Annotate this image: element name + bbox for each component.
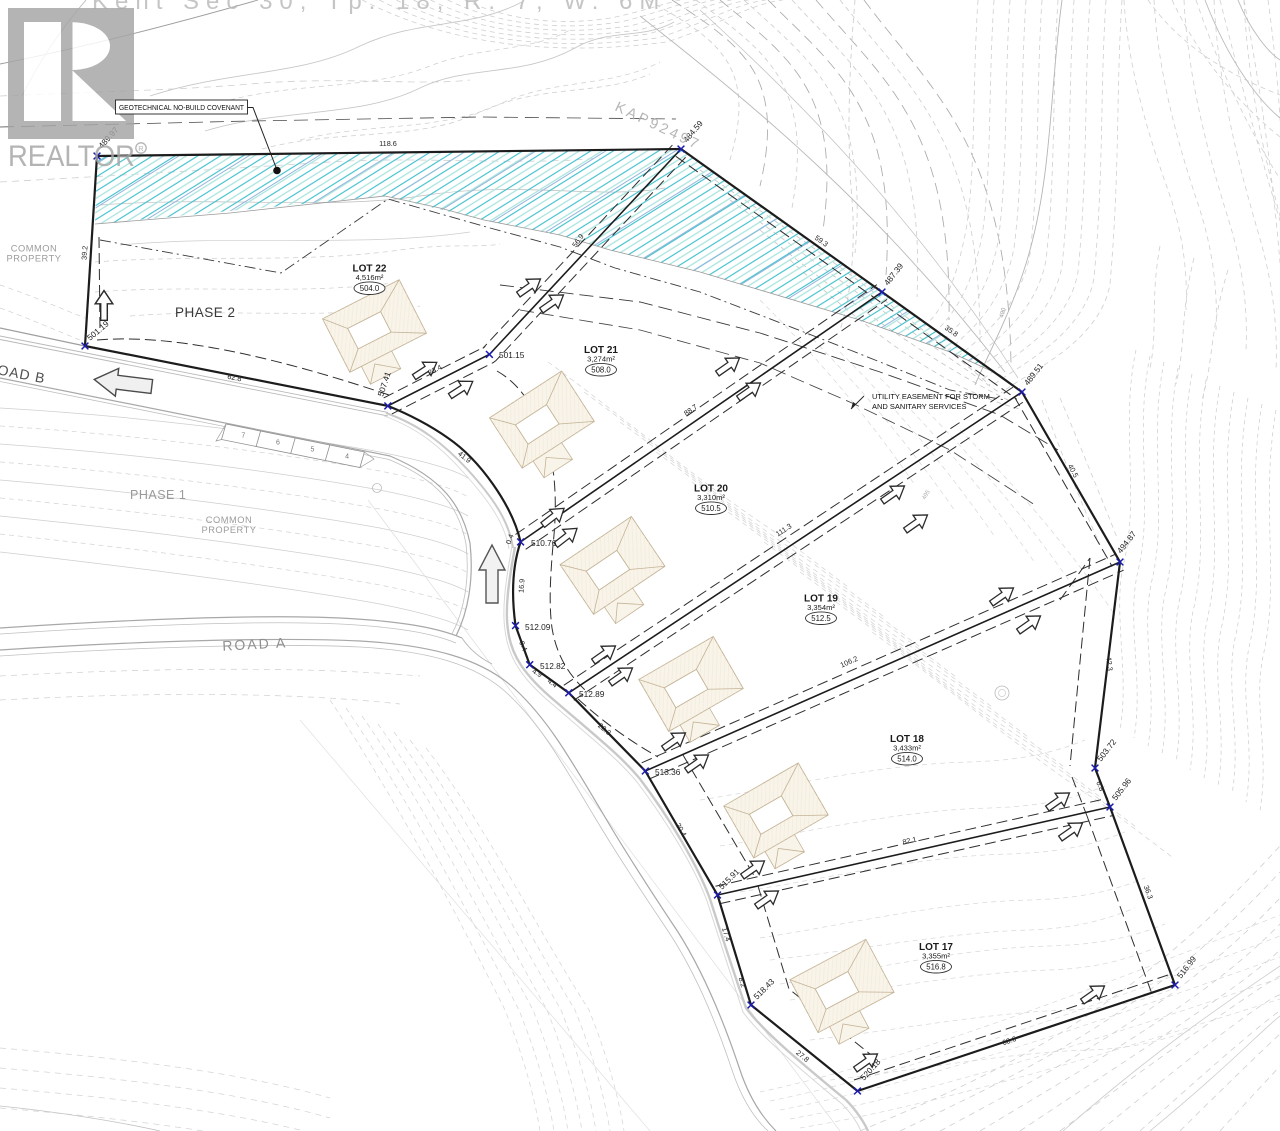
svg-text:COMMON: COMMON (11, 244, 57, 254)
svg-text:3,433m²: 3,433m² (893, 743, 921, 752)
svg-text:3,355m²: 3,355m² (922, 951, 950, 960)
svg-text:508.0: 508.0 (591, 366, 611, 375)
svg-text:510.5: 510.5 (701, 504, 721, 513)
svg-text:3,310m²: 3,310m² (697, 493, 725, 502)
svg-text:PROPERTY: PROPERTY (7, 254, 62, 264)
svg-text:7: 7 (241, 433, 245, 440)
svg-text:3,354m²: 3,354m² (807, 603, 835, 612)
svg-text:REALTOR: REALTOR (8, 140, 135, 173)
svg-text:42.3: 42.3 (1104, 656, 1114, 671)
svg-text:PHASE 1: PHASE 1 (130, 488, 186, 502)
svg-text:PROPERTY: PROPERTY (202, 525, 257, 535)
svg-text:516.8: 516.8 (926, 963, 946, 972)
svg-text:Kent Sec 30, Tp. 18, R. 7, W.: Kent Sec 30, Tp. 18, R. 7, W. 6M (92, 0, 666, 15)
svg-text:512.82: 512.82 (540, 661, 566, 671)
svg-text:512.5: 512.5 (811, 614, 831, 623)
svg-text:39.2: 39.2 (80, 245, 90, 260)
svg-text:3,274m²: 3,274m² (587, 354, 615, 363)
svg-text:COMMON: COMMON (206, 515, 252, 525)
svg-text:GEOTECHNICAL NO-BUILD COVENANT: GEOTECHNICAL NO-BUILD COVENANT (119, 103, 244, 112)
svg-text:UTILITY EASEMENT FOR STORM: UTILITY EASEMENT FOR STORM (872, 392, 990, 401)
svg-text:513.36: 513.36 (655, 767, 681, 777)
svg-text:16.9: 16.9 (517, 578, 527, 593)
svg-text:514.0: 514.0 (897, 755, 917, 764)
svg-text:PHASE 2: PHASE 2 (175, 305, 236, 320)
svg-text:501.15: 501.15 (499, 350, 525, 360)
svg-text:4,516m²: 4,516m² (356, 273, 384, 282)
svg-text:5: 5 (311, 447, 315, 454)
svg-text:6: 6 (276, 440, 280, 447)
svg-text:512.89: 512.89 (579, 689, 605, 699)
svg-text:4: 4 (345, 454, 349, 461)
svg-text:118.6: 118.6 (379, 139, 397, 148)
svg-text:504.0: 504.0 (360, 284, 380, 293)
svg-text:ROAD A: ROAD A (222, 634, 288, 653)
svg-text:512.09: 512.09 (525, 622, 551, 632)
svg-text:R: R (138, 144, 144, 153)
svg-text:AND SANITARY SERVICES: AND SANITARY SERVICES (872, 402, 966, 411)
svg-text:510.76: 510.76 (531, 538, 557, 548)
